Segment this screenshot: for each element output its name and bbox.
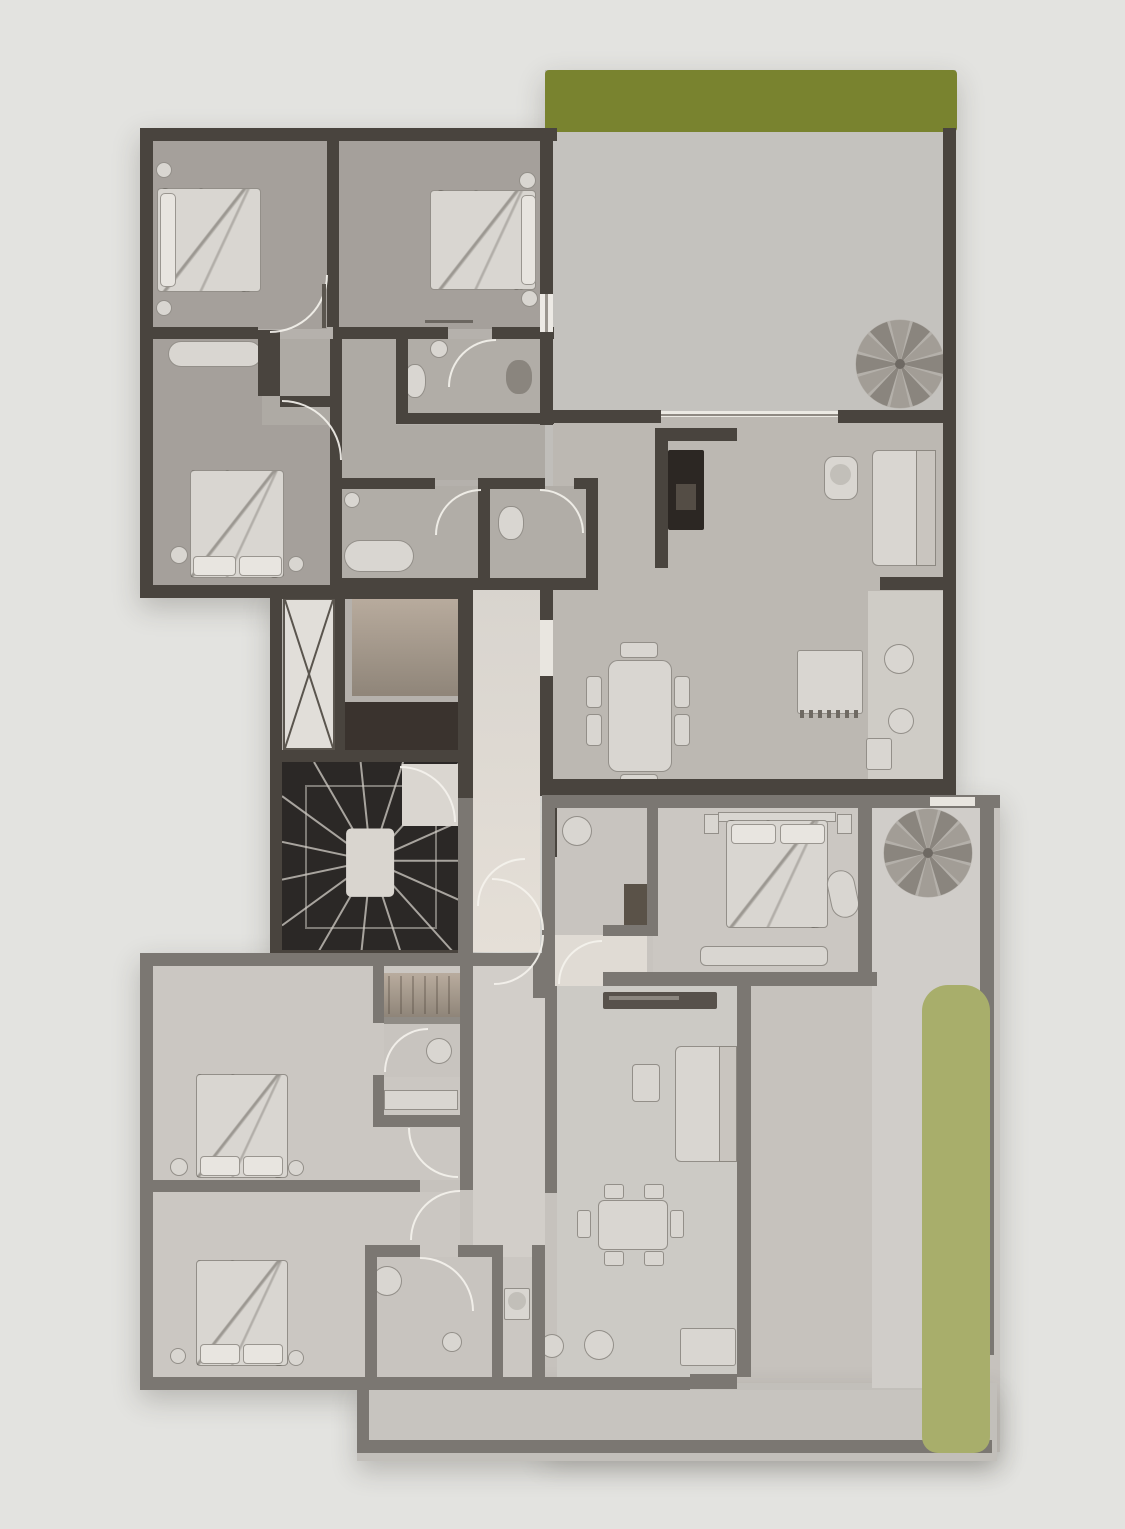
bedA-nightstand1 bbox=[170, 1158, 188, 1176]
master-nightstand2 bbox=[837, 814, 852, 834]
wall-upper-bottom bbox=[545, 779, 956, 795]
bedB-nightstand2 bbox=[288, 1350, 304, 1366]
fireplace-core bbox=[676, 484, 696, 510]
master-bench bbox=[700, 946, 828, 966]
wall-suite-bath-bottom bbox=[603, 925, 658, 936]
wall-living-top-a bbox=[545, 410, 661, 423]
master-nightstand1 bbox=[704, 814, 719, 834]
wall-living-right bbox=[943, 410, 956, 794]
stool-lower2 bbox=[584, 1330, 614, 1360]
wall-bed1-bed2 bbox=[327, 141, 339, 327]
wall-bedroom-divider bbox=[152, 1180, 420, 1192]
living-lower-floor bbox=[557, 986, 737, 1377]
window-suite bbox=[930, 797, 975, 806]
sofa-upper-seat bbox=[872, 450, 918, 566]
bedB-pillow1 bbox=[200, 1344, 240, 1364]
dining-upper-chair5 bbox=[674, 676, 690, 708]
dining-upper-chair1 bbox=[620, 642, 658, 658]
dining-upper-chair4 bbox=[586, 714, 602, 746]
dining-lower-chair4 bbox=[644, 1251, 664, 1266]
kitchen-sink-bowl bbox=[830, 464, 851, 485]
wall-suite-inner bbox=[647, 808, 658, 934]
dining-lower-chair1 bbox=[604, 1184, 624, 1199]
window-bed2-line bbox=[545, 294, 548, 332]
wall-top bbox=[140, 128, 557, 141]
hedge-right bbox=[922, 985, 990, 1453]
wall-hall-top bbox=[333, 327, 448, 339]
wall-terrace-bottom-stub bbox=[690, 1374, 737, 1389]
bath-lower-sink bbox=[442, 1332, 462, 1352]
hall-upper-floor2 bbox=[330, 425, 545, 480]
bed2-nightstand1 bbox=[519, 172, 536, 189]
bedA-pillow1 bbox=[200, 1156, 240, 1176]
wall-strip-bottom bbox=[357, 1440, 992, 1453]
wall-ensuite-left-a bbox=[373, 963, 384, 1023]
dining-lower-chair2 bbox=[644, 1184, 664, 1199]
bath1-sink bbox=[430, 340, 448, 358]
bath2-sink bbox=[344, 492, 360, 508]
kitchen-island-teeth bbox=[800, 710, 860, 718]
dining-lower-chair5 bbox=[577, 1210, 591, 1238]
tv-console-line bbox=[609, 996, 679, 1000]
bedB-nightstand1 bbox=[170, 1348, 186, 1364]
wall-hall-low-left bbox=[460, 963, 473, 1190]
wall-bed2-terrace bbox=[540, 128, 553, 425]
wall-wc-top-stub bbox=[574, 478, 586, 489]
bedA-pillow2 bbox=[243, 1156, 283, 1176]
wall-suite-terrace bbox=[858, 808, 872, 972]
wall-hall-living bbox=[545, 986, 557, 1193]
bed2-pillow bbox=[521, 195, 536, 285]
wall-living-terrace bbox=[737, 983, 751, 1377]
wall-bath2-top bbox=[330, 478, 435, 489]
bed3-nightstand1 bbox=[170, 546, 188, 564]
master-pillow1 bbox=[731, 824, 776, 844]
floor-plan bbox=[0, 0, 1125, 1529]
bed2-nightstand2 bbox=[521, 290, 538, 307]
wall-strip-left bbox=[357, 1383, 369, 1453]
wall-washer-right bbox=[532, 1245, 545, 1379]
dining-upper-table bbox=[608, 660, 672, 772]
side-table bbox=[632, 1064, 660, 1102]
cabinet-lower bbox=[680, 1328, 736, 1366]
vanityA bbox=[384, 1090, 458, 1110]
kitchen-appliance bbox=[866, 738, 892, 770]
wc-toilet bbox=[498, 506, 524, 540]
suite-shower bbox=[562, 816, 592, 846]
bed1-nightstand1 bbox=[156, 162, 172, 178]
palm-plant-upper bbox=[855, 319, 945, 409]
wall-lower-bottom bbox=[140, 1377, 690, 1390]
window-corridor bbox=[540, 620, 553, 676]
dining-lower-chair6 bbox=[670, 1210, 684, 1238]
door-leaf-bed1 bbox=[322, 284, 326, 328]
wall-bed1-bottom bbox=[153, 327, 258, 339]
wall-hall-stub bbox=[258, 330, 280, 396]
wall-wc-top bbox=[478, 478, 545, 489]
bath2-tub bbox=[344, 540, 414, 572]
washing-machine-drum bbox=[508, 1292, 526, 1310]
sliding-door-line bbox=[661, 414, 838, 416]
wall-living-top-b bbox=[838, 410, 956, 423]
kitchen-island bbox=[797, 650, 863, 714]
laundry-floor bbox=[352, 596, 460, 696]
wardrobe-line bbox=[425, 320, 473, 323]
closetA-slats bbox=[388, 976, 458, 1014]
wall-bed3-right bbox=[330, 339, 342, 590]
balcony-strip-floor bbox=[369, 1390, 985, 1442]
island-stool2 bbox=[888, 708, 914, 734]
wall-partial-vert bbox=[655, 428, 668, 568]
bath1-toilet bbox=[506, 360, 532, 394]
suite-closet bbox=[624, 884, 647, 930]
wall-bath1-left bbox=[396, 339, 408, 415]
master-pillow2 bbox=[780, 824, 825, 844]
bedB-pillow2 bbox=[243, 1344, 283, 1364]
wall-stair-right-upper bbox=[458, 588, 473, 798]
wall-stair-left bbox=[270, 588, 282, 962]
bed1-pillow bbox=[160, 193, 176, 287]
wall-corridor-right-b bbox=[540, 676, 553, 796]
wall-terrace-right bbox=[943, 128, 956, 420]
wall-lower-left bbox=[140, 953, 153, 1390]
wall-stair-top bbox=[270, 588, 473, 599]
wall-stair-right-lower bbox=[458, 798, 473, 962]
wall-bath-low-left bbox=[365, 1245, 377, 1378]
wall-kitchen-stub bbox=[880, 577, 943, 590]
wall-corridor-right-a bbox=[540, 590, 553, 622]
sofa-lower-seat bbox=[675, 1046, 721, 1162]
grass-strip-top bbox=[545, 70, 957, 132]
palm-plant-lower bbox=[883, 808, 973, 898]
dining-lower-chair3 bbox=[604, 1251, 624, 1266]
closet-shelf-line bbox=[384, 1017, 460, 1024]
wall-stair-mid bbox=[270, 750, 470, 762]
bed3-pillow2 bbox=[239, 556, 282, 576]
showerA-head bbox=[426, 1038, 452, 1064]
sofa-lower-back bbox=[719, 1046, 737, 1162]
wall-ensuite-bottom bbox=[373, 1115, 460, 1127]
island-stool1 bbox=[884, 644, 914, 674]
utility-floor bbox=[345, 702, 465, 754]
wall-bath1-bottom bbox=[396, 413, 554, 424]
wall-lift-right bbox=[335, 598, 345, 750]
wall-left bbox=[140, 128, 153, 598]
bed1-nightstand2 bbox=[156, 300, 172, 316]
bedA-nightstand2 bbox=[288, 1160, 304, 1176]
dining-lower-table bbox=[598, 1200, 668, 1250]
wall-wc-right bbox=[586, 478, 598, 590]
dining-upper-chair6 bbox=[674, 714, 690, 746]
dining-upper-chair3 bbox=[586, 676, 602, 708]
bed3-nightstand2 bbox=[288, 556, 304, 572]
bed3-pillow1 bbox=[193, 556, 236, 576]
tv-console-lower bbox=[603, 992, 717, 1009]
wall-bath-washer bbox=[492, 1245, 503, 1379]
elevator bbox=[283, 598, 335, 750]
wall-partial-horiz bbox=[655, 428, 737, 441]
dresser-bench bbox=[168, 341, 262, 367]
sofa-upper-back bbox=[916, 450, 936, 566]
wall-lower-top bbox=[140, 953, 545, 966]
